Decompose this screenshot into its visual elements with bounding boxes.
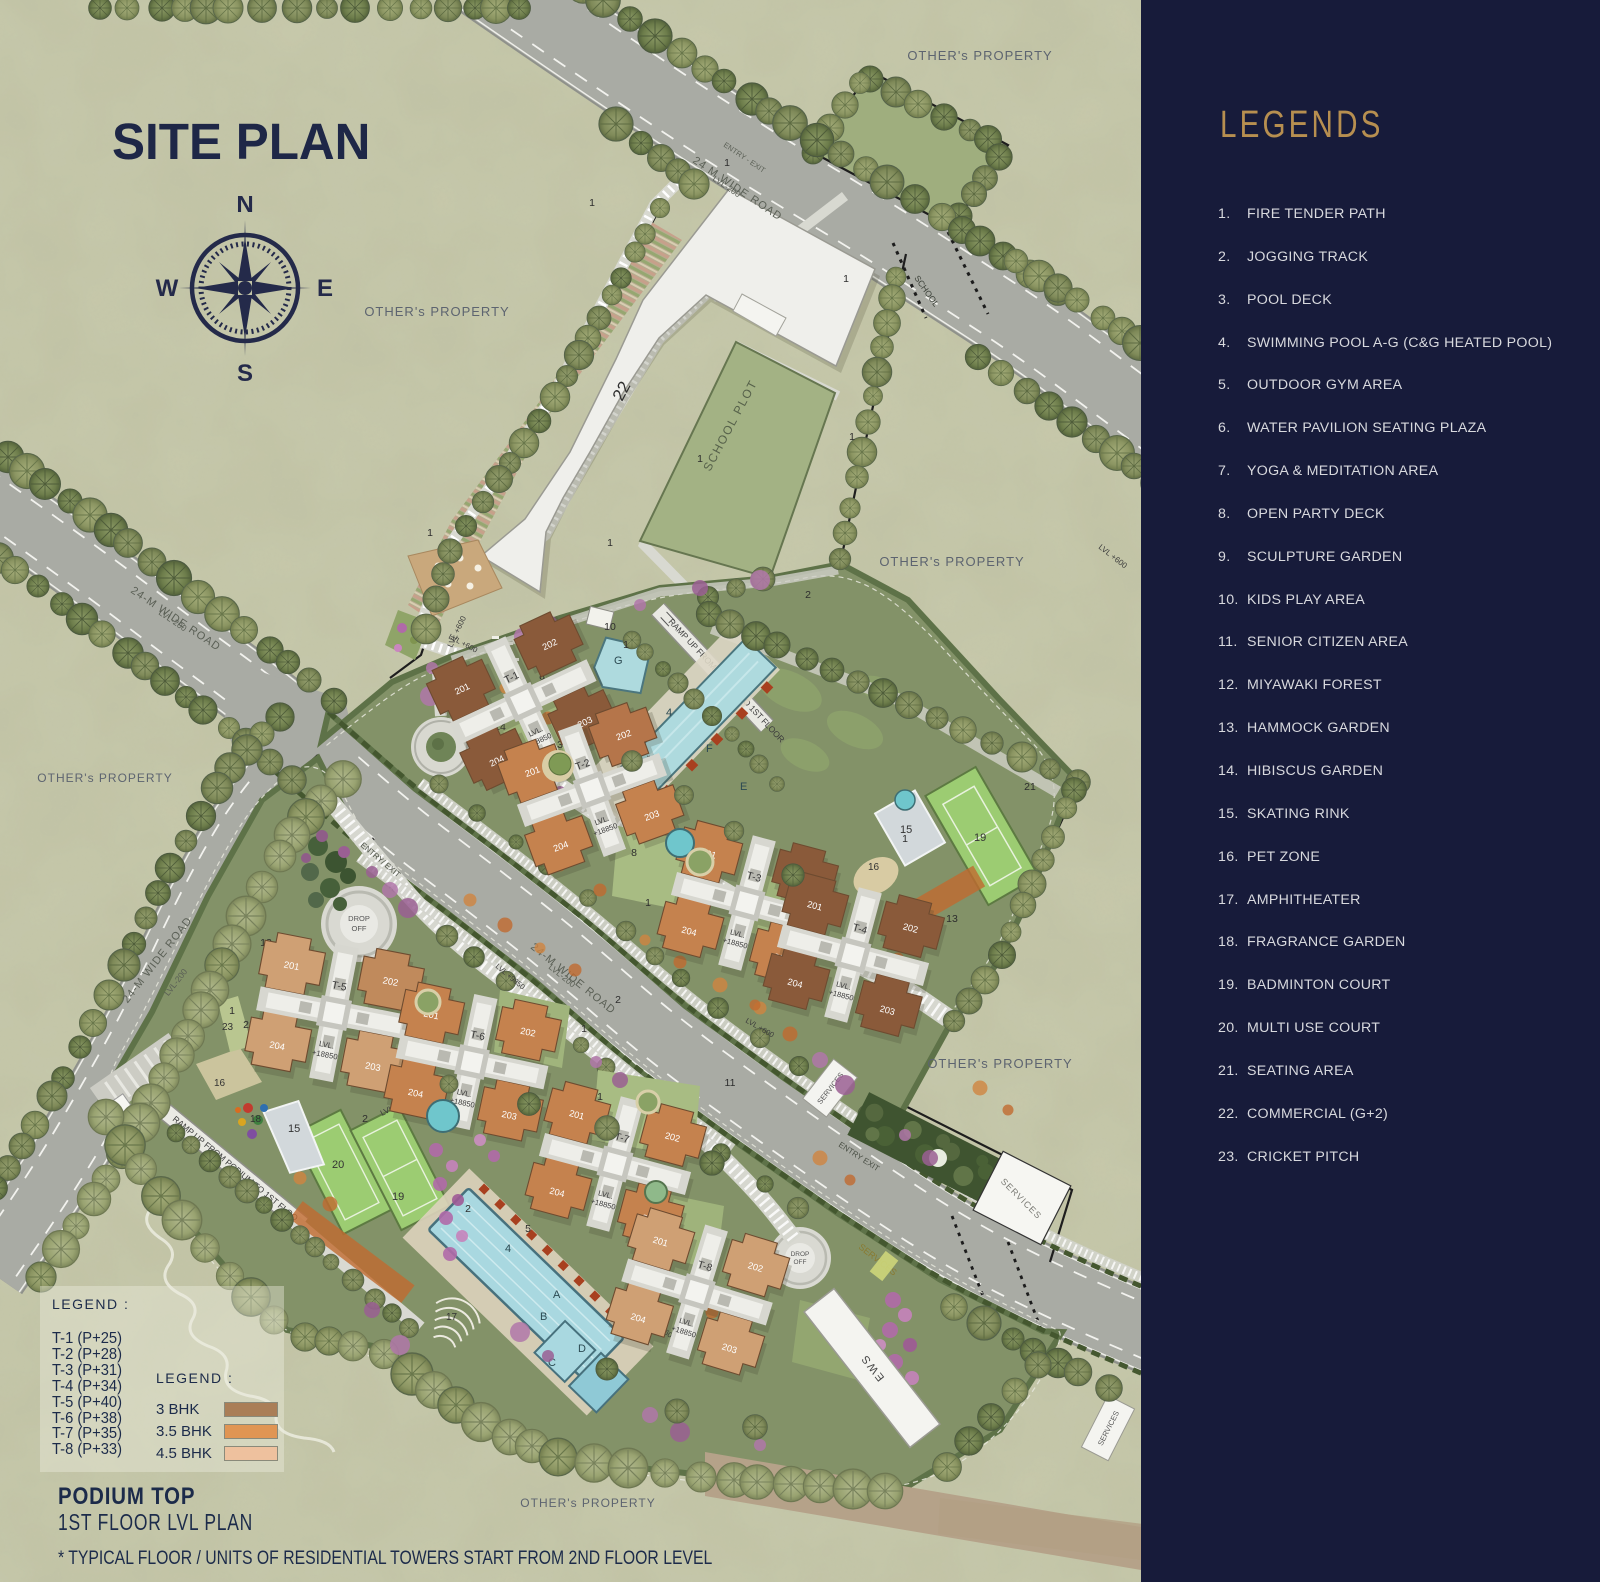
svg-text:4: 4: [505, 1243, 511, 1255]
svg-text:4: 4: [666, 707, 672, 719]
svg-text:15: 15: [288, 1123, 300, 1135]
svg-text:1: 1: [581, 1023, 587, 1035]
svg-text:20: 20: [332, 1159, 344, 1171]
svg-text:N: N: [236, 196, 253, 218]
svg-text:OTHER's PROPERTY: OTHER's PROPERTY: [907, 48, 1052, 63]
svg-text:1: 1: [607, 537, 613, 549]
svg-text:F: F: [706, 743, 713, 755]
svg-text:2: 2: [243, 1019, 249, 1031]
svg-text:2: 2: [615, 994, 621, 1006]
svg-text:1: 1: [724, 157, 730, 169]
svg-text:11: 11: [725, 1077, 736, 1089]
svg-text:E: E: [317, 275, 333, 302]
svg-text:1: 1: [427, 527, 433, 539]
svg-text:1: 1: [697, 453, 703, 465]
svg-text:18: 18: [250, 1114, 262, 1125]
svg-text:23: 23: [222, 1022, 234, 1033]
svg-text:OTHER's PROPERTY: OTHER's PROPERTY: [37, 771, 172, 785]
svg-text:19: 19: [392, 1191, 404, 1203]
svg-text:W: W: [156, 275, 179, 302]
svg-text:1: 1: [623, 639, 629, 651]
svg-text:DROP: DROP: [791, 1251, 810, 1258]
svg-text:16: 16: [214, 1078, 226, 1089]
svg-text:10: 10: [604, 621, 616, 633]
svg-text:2: 2: [465, 1203, 471, 1215]
svg-text:D: D: [578, 1343, 586, 1355]
svg-text:1: 1: [849, 431, 855, 443]
svg-text:1: 1: [229, 1005, 235, 1017]
svg-text:DROP: DROP: [348, 914, 370, 923]
svg-text:1: 1: [645, 897, 651, 909]
svg-text:E: E: [740, 781, 747, 793]
svg-text:B: B: [540, 1311, 547, 1323]
svg-text:OTHER's PROPERTY: OTHER's PROPERTY: [364, 304, 509, 319]
svg-text:1: 1: [843, 273, 849, 285]
svg-text:5: 5: [525, 1223, 531, 1235]
svg-text:OFF: OFF: [794, 1259, 807, 1266]
svg-text:16: 16: [868, 862, 880, 873]
svg-text:OTHER's PROPERTY: OTHER's PROPERTY: [520, 1496, 655, 1510]
svg-text:1: 1: [589, 197, 595, 209]
svg-text:19: 19: [974, 832, 986, 844]
svg-text:G: G: [614, 655, 623, 667]
svg-text:17: 17: [446, 1312, 458, 1323]
svg-text:A: A: [553, 1289, 561, 1301]
svg-text:S: S: [237, 360, 253, 381]
svg-text:2: 2: [362, 1113, 368, 1125]
svg-text:OTHER's PROPERTY: OTHER's PROPERTY: [879, 554, 1024, 569]
svg-text:1: 1: [902, 833, 908, 845]
svg-text:OTHER's PROPERTY: OTHER's PROPERTY: [927, 1056, 1072, 1071]
svg-text:2: 2: [805, 589, 811, 601]
svg-text:21: 21: [1024, 781, 1036, 793]
svg-text:13: 13: [946, 913, 958, 925]
svg-text:OFF: OFF: [352, 924, 367, 933]
